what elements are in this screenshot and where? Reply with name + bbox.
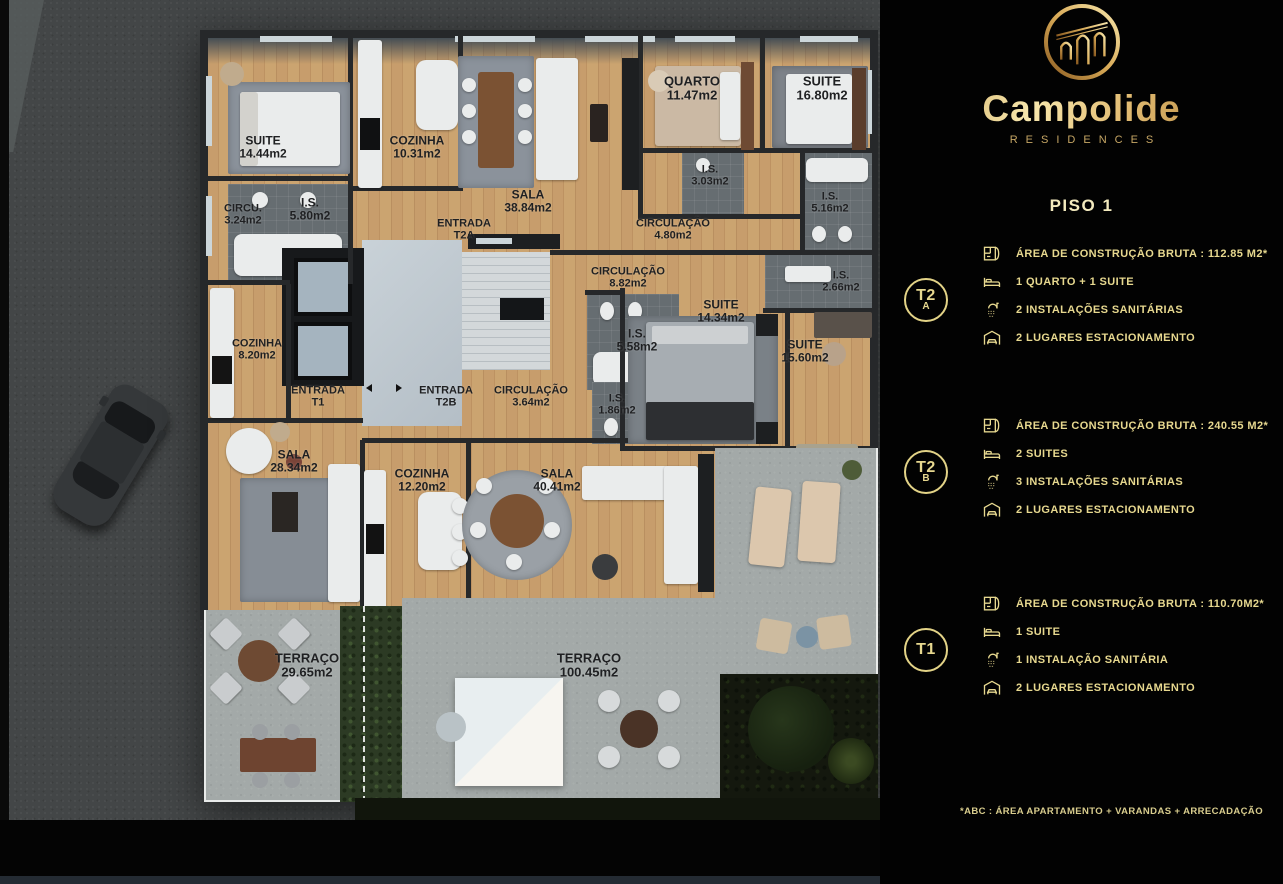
bottom-road-strip xyxy=(0,876,880,884)
room-area: 11.47m2 xyxy=(664,88,720,102)
cooktop xyxy=(360,118,380,150)
spec-row-area: ÁREA DE CONSTRUÇÃO BRUTA : 112.85 M2* xyxy=(982,244,1272,263)
outdoor-side-table xyxy=(796,626,818,648)
window xyxy=(585,36,655,42)
kitchen-counter xyxy=(358,40,382,188)
spec-text: ÁREA DE CONSTRUÇÃO BRUTA : 112.85 M2* xyxy=(1016,248,1268,260)
sofa xyxy=(328,464,360,602)
spec-row-bathrooms: 1 INSTALAÇÃO SANITÁRIA xyxy=(982,650,1272,669)
brand-name: Campolide xyxy=(880,88,1283,130)
wall xyxy=(785,310,790,450)
spec-rows: ÁREA DE CONSTRUÇÃO BRUTA : 240.55 M2* 2 … xyxy=(982,416,1272,528)
window xyxy=(260,36,332,42)
floorplan-icon xyxy=(982,416,1002,436)
hedge xyxy=(340,606,402,802)
outdoor-chair xyxy=(816,614,852,650)
floorplan-marketing-page: SUITE14.44m2COZINHA10.31m2SALA38.84m2QUA… xyxy=(0,0,1283,884)
coffee-table xyxy=(590,104,608,142)
room-name: I.S. xyxy=(691,164,728,176)
room-label: TERRAÇO100.45m2 xyxy=(557,651,621,678)
garage-icon xyxy=(982,678,1002,698)
room-name: ENTRADA xyxy=(437,218,491,230)
dining-table-round xyxy=(490,494,544,548)
room-label: ENTRADAT2A xyxy=(437,218,491,241)
chair xyxy=(462,78,476,92)
room-name: SUITE xyxy=(239,134,286,147)
window xyxy=(800,36,858,42)
chair xyxy=(518,130,532,144)
unit-card-t1: T1 ÁREA DE CONSTRUÇÃO BRUTA : 110.70M2* … xyxy=(880,594,1283,706)
outdoor-chair xyxy=(658,690,680,712)
spec-text: 2 LUGARES ESTACIONAMENTO xyxy=(1016,332,1195,344)
room-label: SALA28.34m2 xyxy=(270,448,317,473)
floor-title: PISO 1 xyxy=(880,196,1283,216)
brand-block: Campolide RESIDENCES xyxy=(880,2,1283,146)
room-label: CIRCULAÇÃO3.64m2 xyxy=(494,385,568,408)
room-area: 2.66m2 xyxy=(822,282,859,294)
scene-left-edge xyxy=(0,0,9,884)
tree xyxy=(748,686,834,772)
room-area: 15.60m2 xyxy=(781,351,828,364)
room-name: QUARTO xyxy=(664,74,720,88)
room-label: SUITE14.44m2 xyxy=(239,134,286,159)
spec-row-bathrooms: 3 INSTALAÇÕES SANITÁRIAS xyxy=(982,472,1272,491)
firepit xyxy=(436,712,466,742)
closet xyxy=(814,312,872,338)
plant xyxy=(842,460,862,480)
spec-row-parking: 2 LUGARES ESTACIONAMENTO xyxy=(982,678,1272,697)
chair xyxy=(476,478,492,494)
sofa xyxy=(664,466,698,584)
spec-row-area: ÁREA DE CONSTRUÇÃO BRUTA : 240.55 M2* xyxy=(982,416,1272,435)
spec-text: ÁREA DE CONSTRUÇÃO BRUTA : 110.70M2* xyxy=(1016,598,1264,610)
spec-text: 2 SUITES xyxy=(1016,448,1068,460)
room-area: 4.80m2 xyxy=(636,230,710,242)
room-area: 8.20m2 xyxy=(232,350,282,362)
toilet xyxy=(600,302,614,320)
room-name: TERRAÇO xyxy=(557,651,621,665)
room-label: SALA38.84m2 xyxy=(504,188,551,213)
room-area: 16.80m2 xyxy=(796,88,847,102)
chair xyxy=(544,522,560,538)
spec-text: 1 INSTALAÇÃO SANITÁRIA xyxy=(1016,654,1168,666)
room-label: I.S.2.66m2 xyxy=(822,270,859,293)
palm-tree xyxy=(828,738,874,784)
stair-void xyxy=(500,298,544,320)
aqueduct-arches-logo-icon xyxy=(1041,2,1123,82)
wall xyxy=(760,250,872,255)
spec-row-area: ÁREA DE CONSTRUÇÃO BRUTA : 110.70M2* xyxy=(982,594,1272,613)
room-label: CIRCU.3.24m2 xyxy=(224,203,262,226)
wall xyxy=(620,288,625,448)
badge-line2: A xyxy=(922,303,929,312)
shower-icon xyxy=(982,472,1002,492)
bed-icon xyxy=(982,444,1002,464)
nightstand xyxy=(756,422,778,444)
room-name: I.S. xyxy=(822,270,859,282)
room-name: COZINHA xyxy=(395,467,450,480)
chair xyxy=(506,554,522,570)
room-name: SALA xyxy=(533,467,580,480)
headboard xyxy=(852,68,866,150)
room-name: CIRCULAÇÃO xyxy=(494,385,568,397)
badge-line1: T1 xyxy=(916,643,936,657)
toilet xyxy=(604,418,618,436)
elevator-shaft xyxy=(294,258,352,316)
room-label: COZINHA8.20m2 xyxy=(232,338,282,361)
stool xyxy=(452,550,468,566)
parked-car xyxy=(46,379,174,534)
spec-row-bedrooms: 1 QUARTO + 1 SUITE xyxy=(982,272,1272,291)
elevator-arrow-left xyxy=(366,384,372,392)
room-name: ENTRADA xyxy=(291,385,345,397)
elevator-shaft xyxy=(294,322,352,380)
room-name: I.S. xyxy=(598,393,635,405)
unit-badge-t2b: T2 B xyxy=(904,450,948,494)
outdoor-table xyxy=(240,738,316,772)
room-label: I.S.5.58m2 xyxy=(617,327,658,352)
kitchen-counter xyxy=(210,288,234,418)
room-area: 10.31m2 xyxy=(390,147,445,160)
dining-table xyxy=(478,72,514,168)
room-label: TERRAÇO29.65m2 xyxy=(275,651,339,678)
outdoor-chair xyxy=(658,746,680,768)
bottom-black-band xyxy=(0,820,880,884)
spec-rows: ÁREA DE CONSTRUÇÃO BRUTA : 110.70M2* 1 S… xyxy=(982,594,1272,706)
room-area: 5.16m2 xyxy=(811,203,848,215)
spec-row-bedrooms: 1 SUITE xyxy=(982,622,1272,641)
room-name: SUITE xyxy=(781,338,828,351)
brand-tagline: RESIDENCES xyxy=(880,134,1283,146)
room-area: T1 xyxy=(291,397,345,409)
car-mirror-right xyxy=(156,429,167,441)
room-name: TERRAÇO xyxy=(275,651,339,665)
window xyxy=(675,36,735,42)
room-area: 3.24m2 xyxy=(224,215,262,227)
spec-row-bathrooms: 2 INSTALAÇÕES SANITÁRIAS xyxy=(982,300,1272,319)
toilet xyxy=(812,226,826,242)
spec-text: 1 SUITE xyxy=(1016,626,1060,638)
room-area: 5.58m2 xyxy=(617,340,658,353)
room-name: SALA xyxy=(270,448,317,461)
armchair xyxy=(592,554,618,580)
spec-text: ÁREA DE CONSTRUÇÃO BRUTA : 240.55 M2* xyxy=(1016,420,1268,432)
room-label: I.S.5.16m2 xyxy=(811,191,848,214)
spec-text: 2 LUGARES ESTACIONAMENTO xyxy=(1016,682,1195,694)
outdoor-chair xyxy=(284,772,300,788)
room-area: 14.34m2 xyxy=(697,311,744,324)
chair xyxy=(470,522,486,538)
unit-card-t2a: T2 A ÁREA DE CONSTRUÇÃO BRUTA : 112.85 M… xyxy=(880,244,1283,356)
room-label: COZINHA10.31m2 xyxy=(390,134,445,159)
render-scene: SUITE14.44m2COZINHA10.31m2SALA38.84m2QUA… xyxy=(0,0,880,884)
bed-pillows xyxy=(720,72,740,140)
outdoor-chair xyxy=(284,724,300,740)
wall xyxy=(585,290,625,295)
headboard xyxy=(741,62,754,150)
chair xyxy=(270,422,290,442)
outdoor-chair xyxy=(598,690,620,712)
room-area: 8.82m2 xyxy=(591,278,665,290)
spec-text: 2 INSTALAÇÕES SANITÁRIAS xyxy=(1016,304,1183,316)
room-label: CIRCULAÇÃO8.82m2 xyxy=(591,266,665,289)
room-area: 29.65m2 xyxy=(275,665,339,679)
cooktop xyxy=(212,356,232,384)
dining-table-round xyxy=(226,428,272,474)
room-area: 28.34m2 xyxy=(270,461,317,474)
spec-text: 1 QUARTO + 1 SUITE xyxy=(1016,276,1134,288)
room-label: QUARTO11.47m2 xyxy=(664,74,720,101)
room-label: I.S.3.03m2 xyxy=(691,164,728,187)
sun-lounger xyxy=(797,481,840,563)
room-label: SUITE16.80m2 xyxy=(796,74,847,101)
wall xyxy=(208,280,290,285)
car-mirror-left xyxy=(98,395,109,407)
spec-row-bedrooms: 2 SUITES xyxy=(982,444,1272,463)
wardrobe xyxy=(622,58,639,190)
bathtub xyxy=(806,158,868,182)
outdoor-chair xyxy=(252,772,268,788)
chair xyxy=(518,78,532,92)
bed-pillows xyxy=(652,326,748,344)
outdoor-chair xyxy=(598,746,620,768)
room-area: 3.64m2 xyxy=(494,397,568,409)
canopy xyxy=(455,678,563,786)
room-name: SUITE xyxy=(697,298,744,311)
chair xyxy=(518,104,532,118)
floor-plan: SUITE14.44m2COZINHA10.31m2SALA38.84m2QUA… xyxy=(200,26,878,802)
room-label: I.S.1.86m2 xyxy=(598,393,635,416)
kitchen-island xyxy=(416,60,458,130)
wall xyxy=(208,418,363,423)
room-label: SUITE14.34m2 xyxy=(697,298,744,323)
room-label: CIRCULAÇÃO4.80m2 xyxy=(636,218,710,241)
cooktop xyxy=(366,524,384,554)
wall xyxy=(638,148,872,153)
room-label: SALA40.41m2 xyxy=(533,467,580,492)
spec-row-parking: 2 LUGARES ESTACIONAMENTO xyxy=(982,328,1272,347)
outdoor-table-round xyxy=(238,640,280,682)
room-area: T2A xyxy=(437,230,491,242)
toilet xyxy=(838,226,852,242)
room-area: 5.80m2 xyxy=(290,209,331,222)
unit-badge-t2a: T2 A xyxy=(904,278,948,322)
room-name: I.S. xyxy=(290,196,331,209)
room-name: I.S. xyxy=(811,191,848,203)
outdoor-chair xyxy=(252,724,268,740)
badge-line2: B xyxy=(922,475,929,484)
boundary-dashed-line xyxy=(363,606,365,802)
room-name: CIRCULAÇÃO xyxy=(591,266,665,278)
shower-icon xyxy=(982,650,1002,670)
armchair xyxy=(220,62,244,86)
room-name: SALA xyxy=(504,188,551,201)
room-area: 40.41m2 xyxy=(533,480,580,493)
chair xyxy=(462,104,476,118)
nightstand xyxy=(756,314,778,336)
room-area: 3.03m2 xyxy=(691,176,728,188)
room-name: SUITE xyxy=(796,74,847,88)
room-area: 38.84m2 xyxy=(504,201,551,214)
wall xyxy=(550,250,765,255)
room-label: COZINHA12.20m2 xyxy=(395,467,450,492)
room-name: COZINHA xyxy=(232,338,282,350)
room-label: ENTRADAT2B xyxy=(419,385,473,408)
outdoor-chair xyxy=(755,617,792,654)
room-label: SUITE15.60m2 xyxy=(781,338,828,363)
chair xyxy=(462,130,476,144)
spec-row-parking: 2 LUGARES ESTACIONAMENTO xyxy=(982,500,1272,519)
shower-icon xyxy=(982,300,1002,320)
garage-icon xyxy=(982,500,1002,520)
room-label: I.S.5.80m2 xyxy=(290,196,331,221)
tv-console xyxy=(272,492,298,532)
wall xyxy=(760,34,765,152)
room-label: ENTRADAT1 xyxy=(291,385,345,408)
bed-icon xyxy=(982,272,1002,292)
info-panel: Campolide RESIDENCES PISO 1 T2 A ÁREA DE… xyxy=(880,0,1283,884)
room-name: ENTRADA xyxy=(419,385,473,397)
spec-text: 2 LUGARES ESTACIONAMENTO xyxy=(1016,504,1195,516)
wall xyxy=(800,152,805,252)
abc-footnote: *ABC : ÁREA APARTAMENTO + VARANDAS + ARR… xyxy=(940,806,1283,817)
floorplan-icon xyxy=(982,594,1002,614)
window xyxy=(206,196,212,256)
room-name: COZINHA xyxy=(390,134,445,147)
room-area: 100.45m2 xyxy=(557,665,621,679)
wall xyxy=(208,176,353,181)
room-area: T2B xyxy=(419,397,473,409)
room-area: 1.86m2 xyxy=(598,405,635,417)
unit-badge-t1: T1 xyxy=(904,628,948,672)
unit-card-t2b: T2 B ÁREA DE CONSTRUÇÃO BRUTA : 240.55 M… xyxy=(880,416,1283,528)
bed-icon xyxy=(982,622,1002,642)
sofa xyxy=(536,58,578,180)
room-name: CIRCULAÇÃO xyxy=(636,218,710,230)
window xyxy=(206,76,212,146)
elevator-arrow-right xyxy=(396,384,402,392)
room-name: I.S. xyxy=(617,327,658,340)
spec-text: 3 INSTALAÇÕES SANITÁRIAS xyxy=(1016,476,1183,488)
room-name: CIRCU. xyxy=(224,203,262,215)
window xyxy=(455,36,535,42)
room-area: 14.44m2 xyxy=(239,147,286,160)
room-area: 12.20m2 xyxy=(395,480,450,493)
bed-throw xyxy=(646,402,754,440)
spec-rows: ÁREA DE CONSTRUÇÃO BRUTA : 112.85 M2* 1 … xyxy=(982,244,1272,356)
tv-wall xyxy=(698,454,714,592)
garage-icon xyxy=(982,328,1002,348)
outdoor-table-round xyxy=(620,710,658,748)
floorplan-icon xyxy=(982,244,1002,264)
